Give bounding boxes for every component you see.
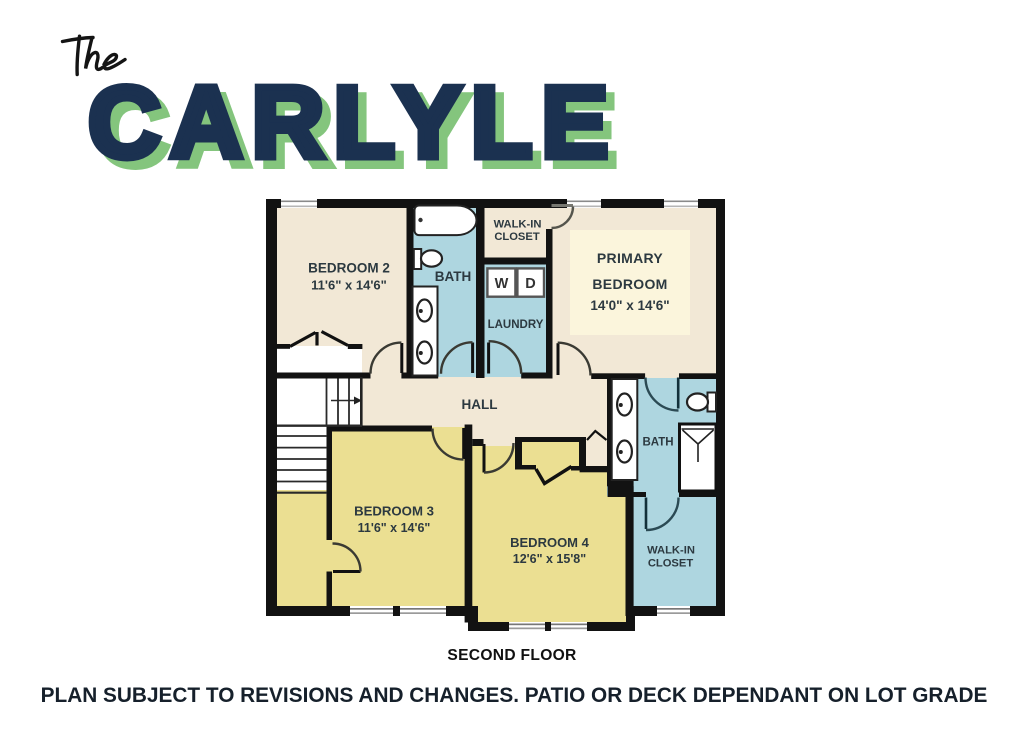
svg-text:12'6" x 15'8": 12'6" x 15'8": [513, 552, 586, 566]
svg-text:CLOSET: CLOSET: [494, 231, 540, 243]
svg-text:11'6" x 14'6": 11'6" x 14'6": [358, 521, 431, 535]
svg-text:PRIMARY: PRIMARY: [597, 250, 664, 266]
svg-text:BEDROOM: BEDROOM: [592, 276, 667, 292]
svg-text:WALK-IN: WALK-IN: [647, 545, 695, 557]
svg-text:SECOND FLOOR: SECOND FLOOR: [447, 647, 576, 664]
svg-text:PLAN SUBJECT TO REVISIONS AND: PLAN SUBJECT TO REVISIONS AND CHANGES. P…: [41, 684, 988, 707]
svg-text:CARLYLE: CARLYLE: [88, 67, 617, 179]
svg-text:14'0" x 14'6": 14'0" x 14'6": [590, 298, 669, 313]
svg-text:BEDROOM 4: BEDROOM 4: [510, 535, 590, 550]
svg-text:LAUNDRY: LAUNDRY: [488, 319, 544, 331]
svg-text:HALL: HALL: [462, 397, 498, 412]
svg-text:D: D: [525, 276, 535, 292]
svg-text:BEDROOM 2: BEDROOM 2: [308, 261, 390, 276]
svg-text:W: W: [495, 276, 509, 292]
svg-text:CLOSET: CLOSET: [648, 558, 694, 570]
svg-text:BEDROOM 3: BEDROOM 3: [354, 504, 434, 519]
svg-text:BATH: BATH: [642, 437, 673, 449]
svg-text:BATH: BATH: [435, 269, 472, 284]
svg-text:11'6" x 14'6": 11'6" x 14'6": [311, 278, 387, 293]
svg-text:WALK-IN: WALK-IN: [494, 219, 542, 231]
